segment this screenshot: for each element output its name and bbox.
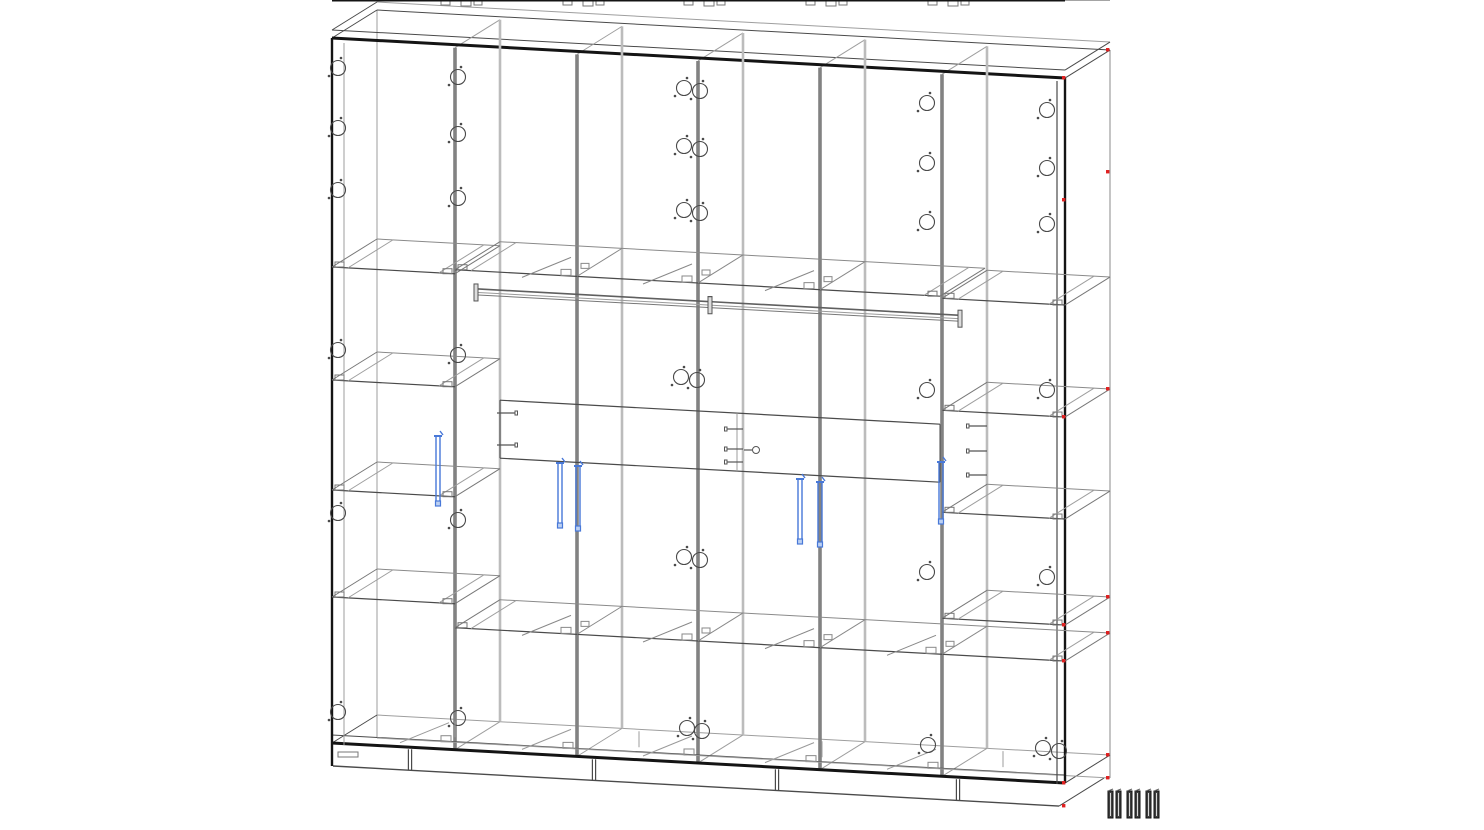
- partitions: [455, 20, 987, 777]
- door-handles: [434, 431, 946, 547]
- mezzanine-shelf: [332, 0, 1110, 6]
- wardrobe-assembly-wireframe: [0, 0, 1484, 830]
- hanging-rods: [474, 284, 962, 327]
- corner-markers: [1062, 48, 1109, 807]
- cad-canvas: [0, 0, 1484, 830]
- top-panel: [332, 2, 1110, 78]
- spare-strips: [1108, 789, 1159, 818]
- mid-panel-band: [500, 400, 940, 482]
